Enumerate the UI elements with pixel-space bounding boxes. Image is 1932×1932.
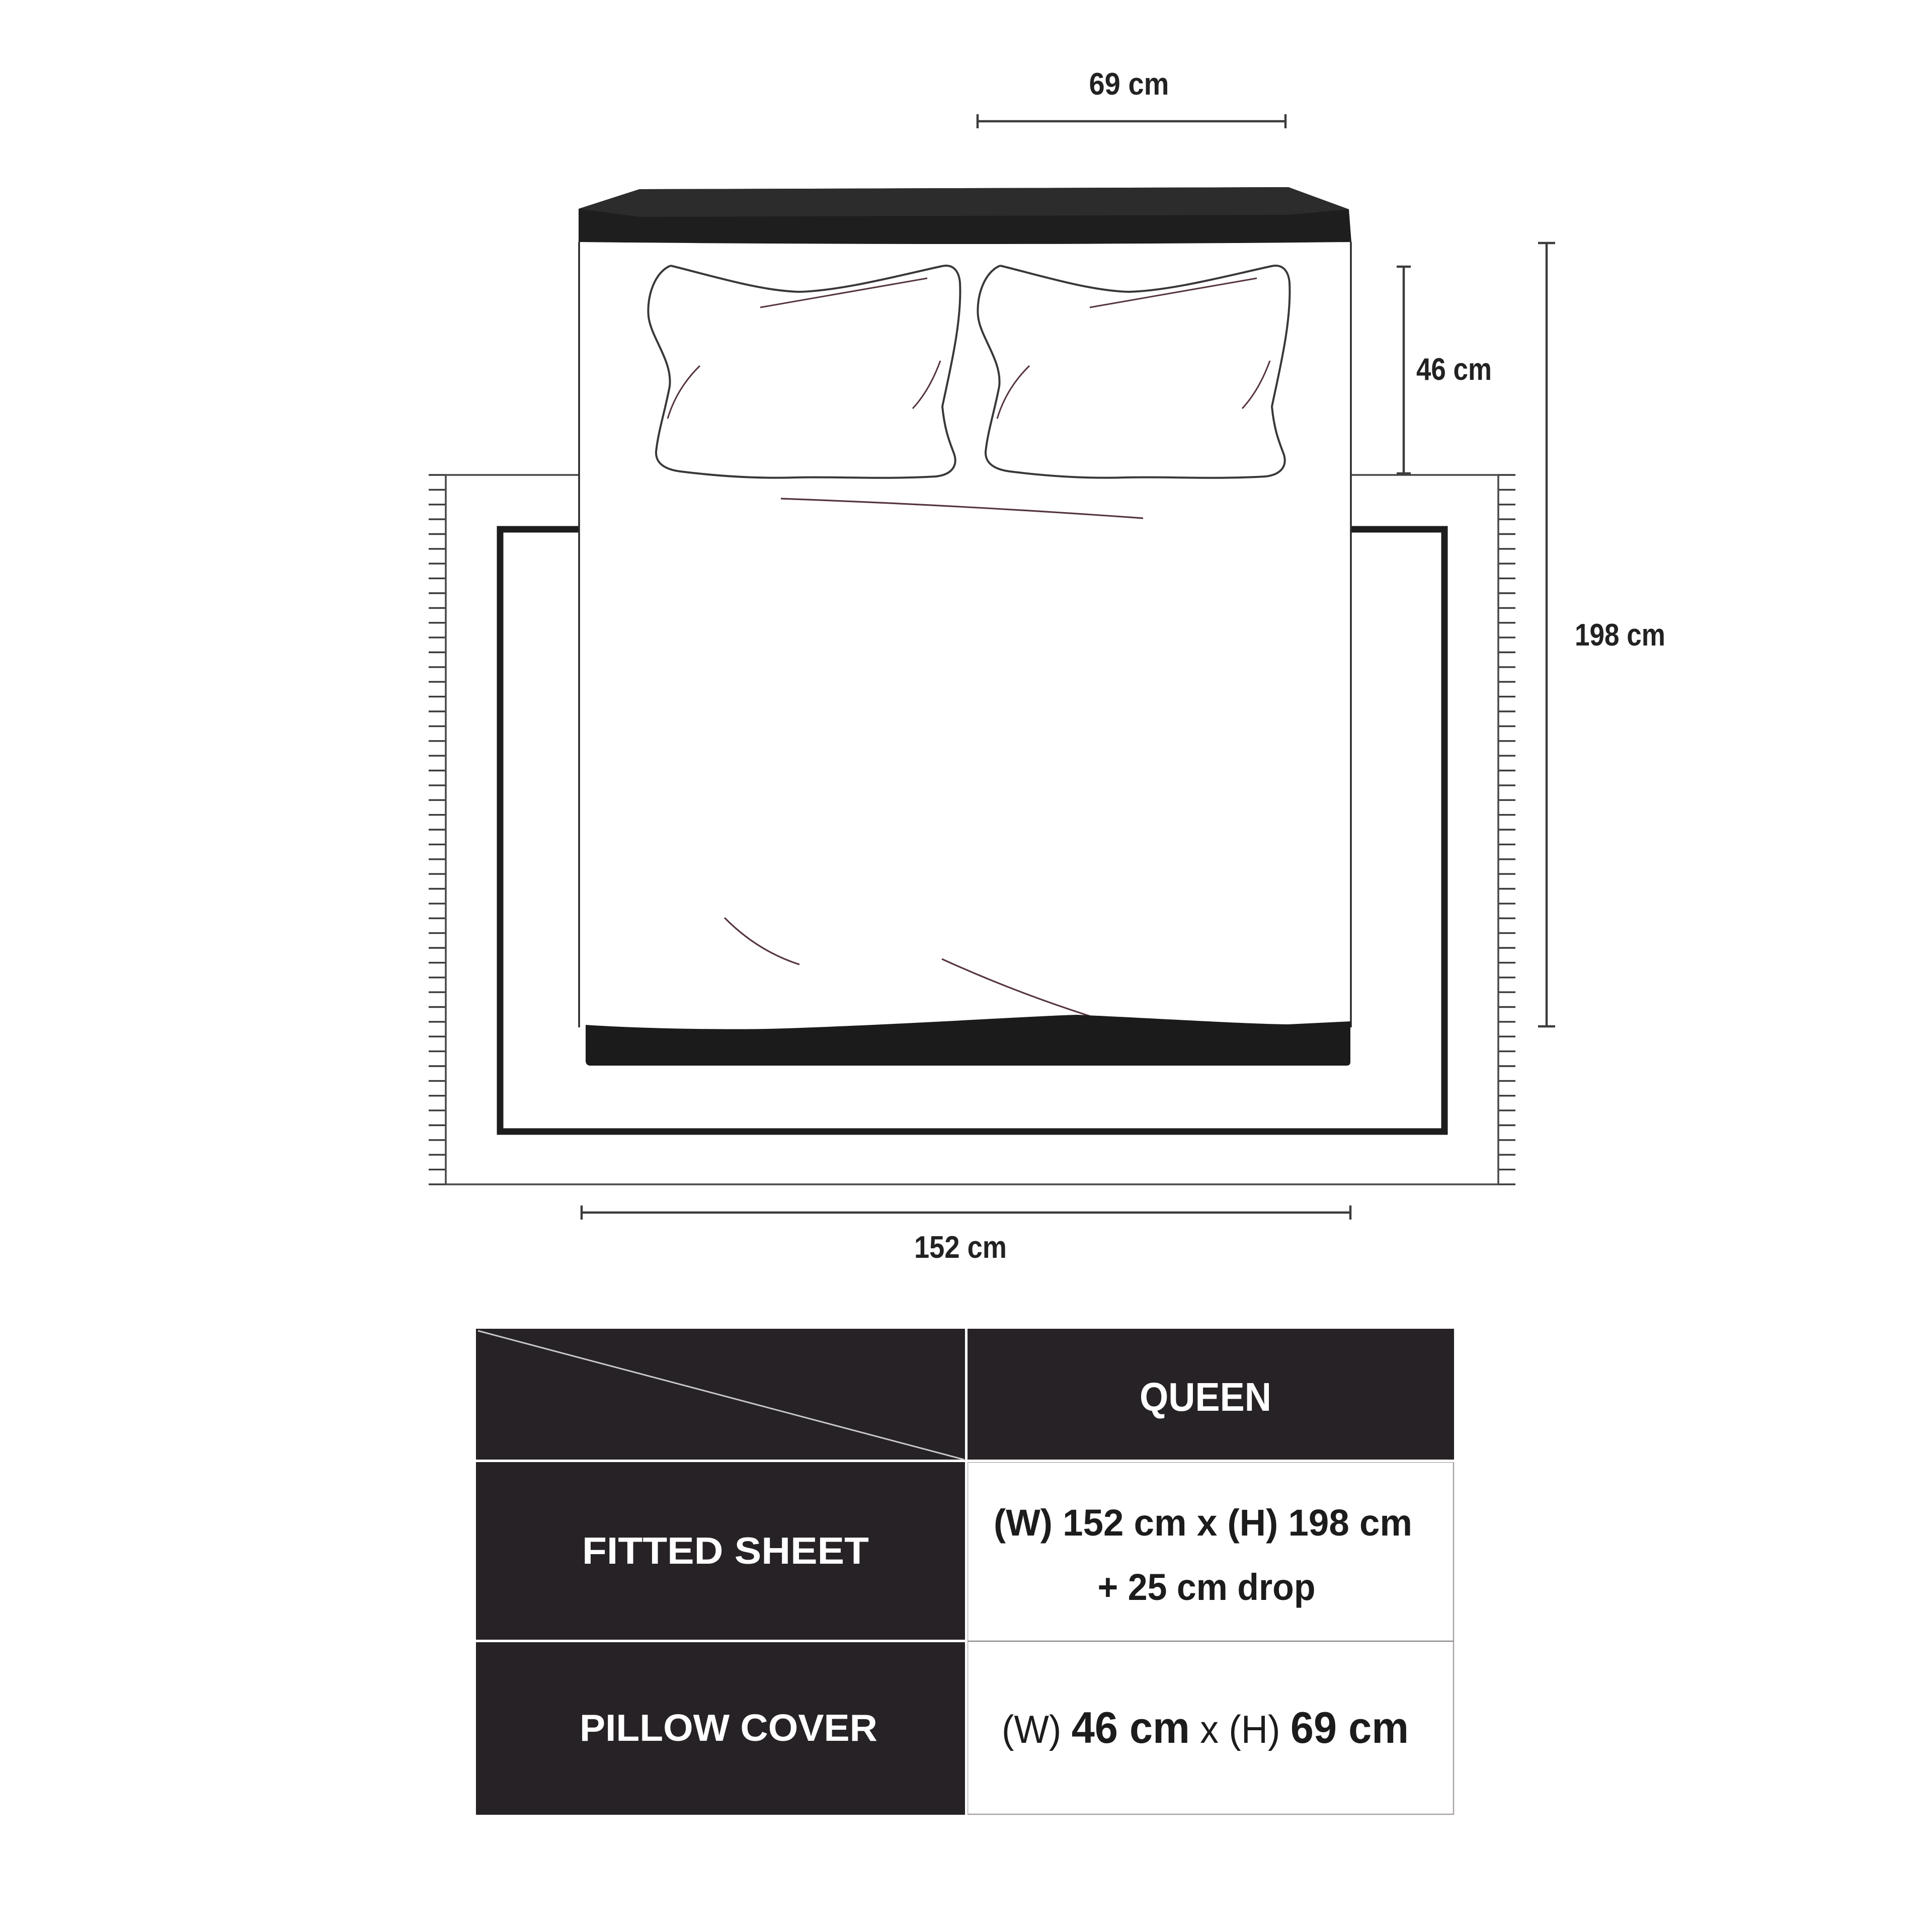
svg-text:+ 25 cm drop: + 25 cm drop <box>1098 1566 1316 1608</box>
svg-text:152 cm: 152 cm <box>914 1230 1007 1265</box>
svg-text:FITTED SHEET: FITTED SHEET <box>582 1530 869 1572</box>
svg-text:(W) 152 cm x (H) 198 cm: (W) 152 cm x (H) 198 cm <box>994 1502 1412 1544</box>
svg-text:(W) 46 cm x (H) 69 cm: (W) 46 cm x (H) 69 cm <box>1002 1703 1409 1752</box>
svg-text:PILLOW COVER: PILLOW COVER <box>580 1707 877 1749</box>
svg-text:QUEEN: QUEEN <box>1140 1375 1271 1419</box>
svg-text:46 cm: 46 cm <box>1416 352 1492 387</box>
svg-text:69 cm: 69 cm <box>1089 67 1169 102</box>
svg-text:198 cm: 198 cm <box>1575 618 1665 653</box>
